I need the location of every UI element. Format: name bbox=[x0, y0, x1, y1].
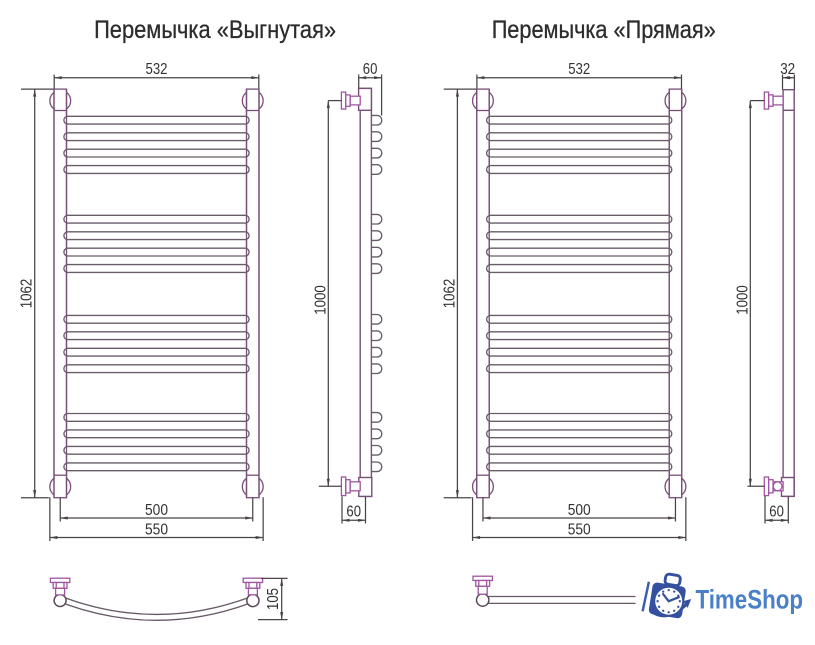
svg-text:1000: 1000 bbox=[734, 285, 751, 315]
svg-text:1062: 1062 bbox=[19, 279, 36, 309]
svg-text:32: 32 bbox=[780, 61, 795, 78]
svg-text:500: 500 bbox=[145, 502, 168, 519]
svg-text:500: 500 bbox=[568, 502, 591, 519]
svg-text:1062: 1062 bbox=[441, 279, 458, 309]
svg-text:60: 60 bbox=[769, 503, 784, 520]
svg-text:532: 532 bbox=[568, 61, 590, 78]
svg-text:60: 60 bbox=[363, 61, 378, 78]
svg-text:Перемычка «Прямая»: Перемычка «Прямая» bbox=[492, 16, 716, 44]
svg-text:550: 550 bbox=[568, 522, 591, 539]
svg-text:60: 60 bbox=[346, 503, 361, 520]
svg-text:550: 550 bbox=[145, 522, 168, 539]
svg-text:105: 105 bbox=[265, 588, 282, 610]
svg-text:TimeShop: TimeShop bbox=[696, 584, 804, 614]
svg-text:1000: 1000 bbox=[313, 285, 330, 315]
svg-text:532: 532 bbox=[146, 61, 168, 78]
svg-text:Перемычка «Выгнутая»: Перемычка «Выгнутая» bbox=[94, 16, 336, 44]
